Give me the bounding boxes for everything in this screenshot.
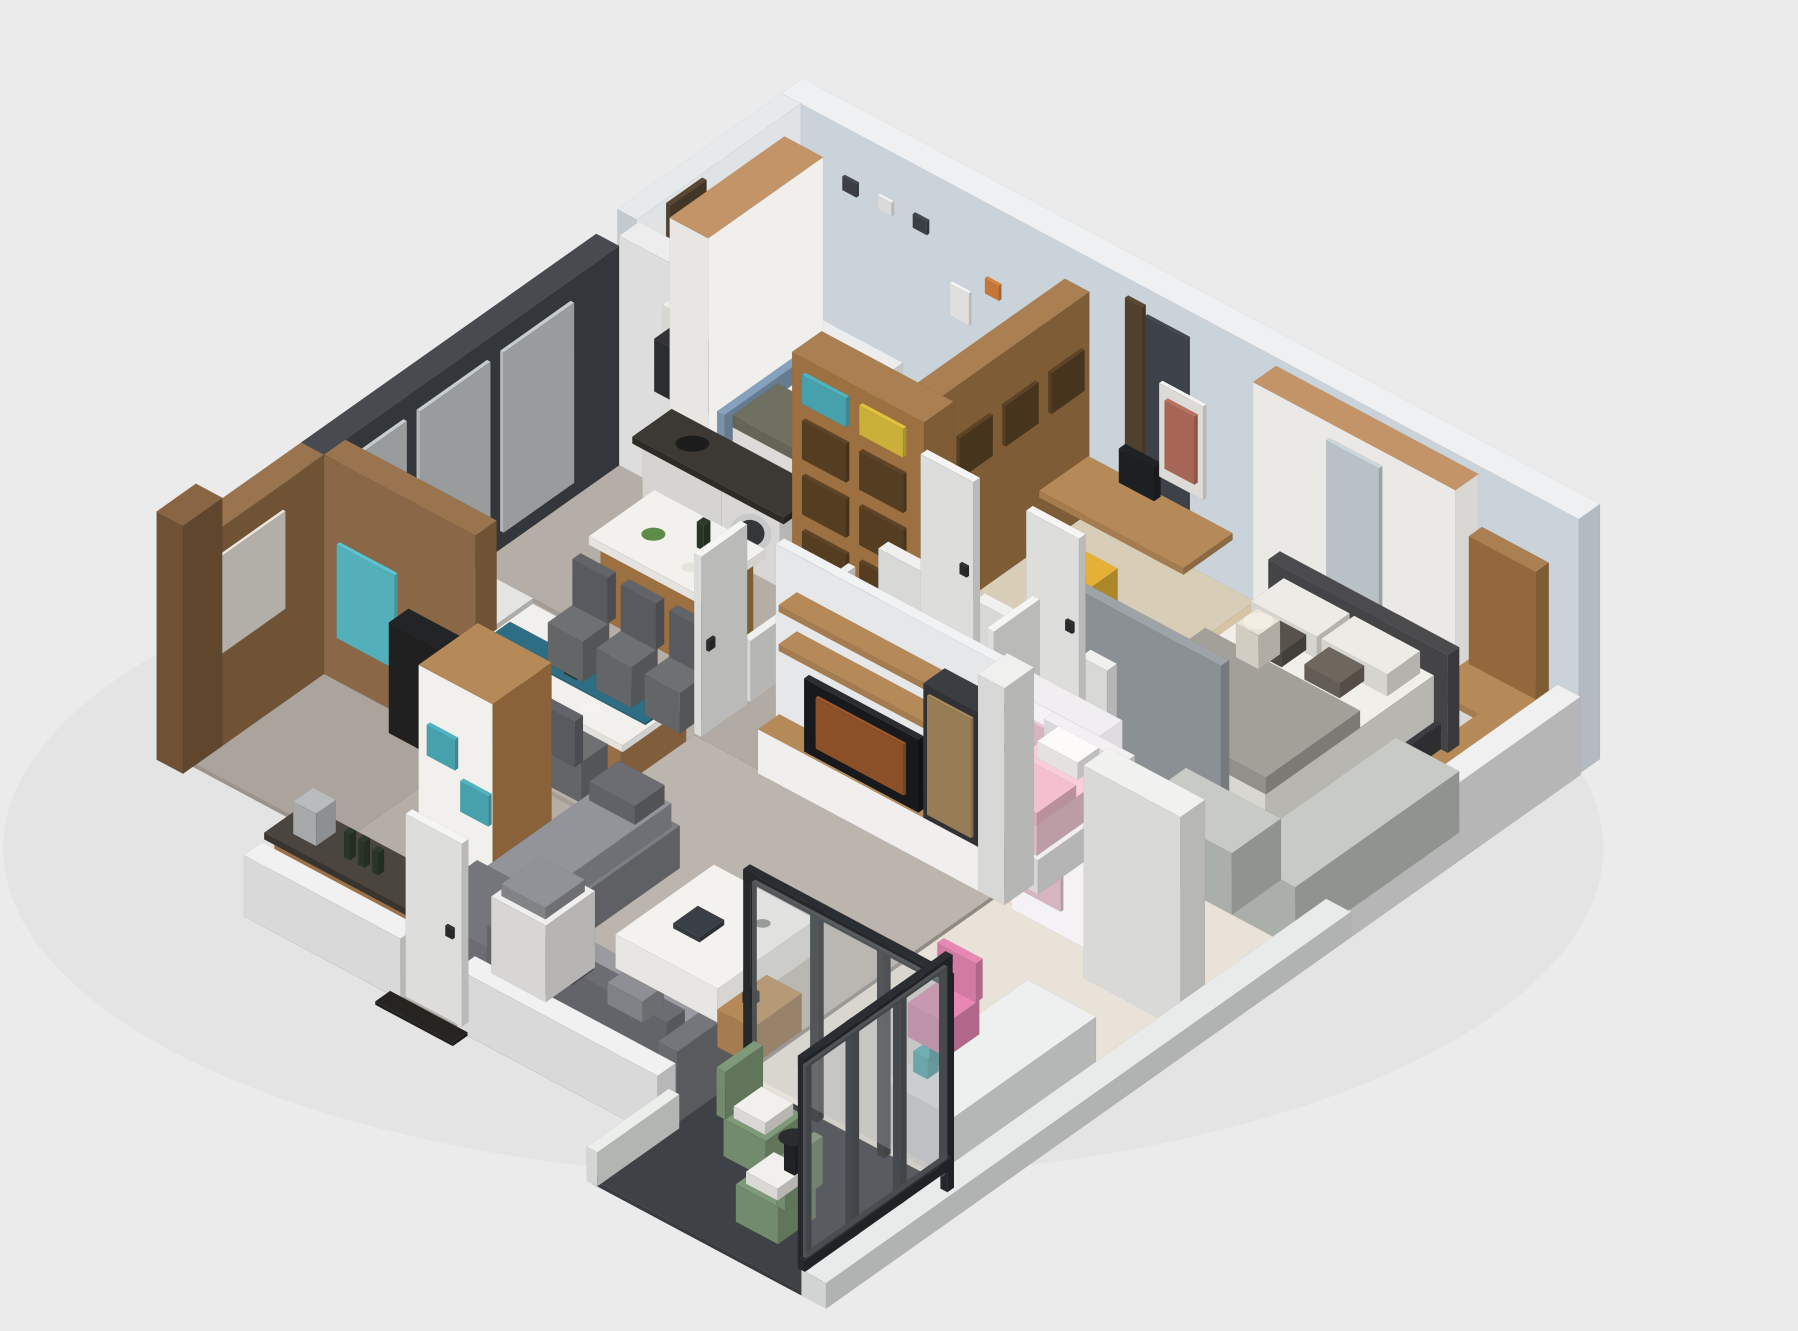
island-plant — [641, 528, 665, 541]
nook-tall-cabinet — [1084, 748, 1205, 1030]
tv-tall-cabinet — [978, 653, 1034, 905]
master-pouf-top — [1243, 613, 1273, 630]
bar-bottle-2 — [358, 835, 370, 868]
cooktop — [675, 436, 709, 452]
dinner-plate-2 — [583, 703, 601, 713]
tea-wood-column — [157, 484, 223, 774]
bar-bottle-1 — [344, 827, 356, 860]
hall-door-kitchen — [694, 521, 747, 738]
apartment-render — [0, 0, 1798, 1331]
front-door — [406, 809, 469, 1027]
floorplan-svg — [0, 0, 1798, 1331]
display-cabinet-inner — [927, 694, 974, 838]
bar-bottle-3 — [372, 846, 384, 875]
